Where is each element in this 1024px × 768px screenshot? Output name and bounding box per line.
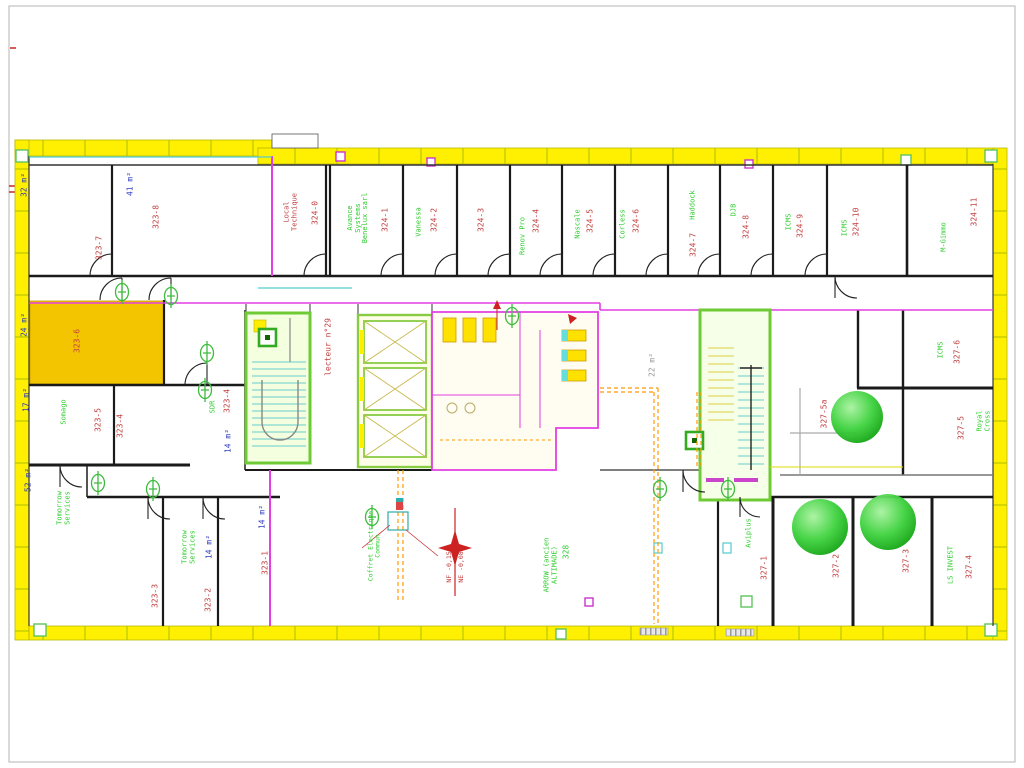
door-sensor-icon [201, 341, 214, 365]
door-sensor-icon [92, 471, 105, 495]
north-arrow-icon [438, 508, 472, 596]
stairwell-west [246, 313, 310, 463]
door-sensor-icon [654, 477, 667, 501]
floor-plan: 32 m² 323-7 41 m² 323-8 Local Technique … [0, 0, 1024, 768]
electrical-cabinet [362, 498, 438, 556]
floor-marker-icon [259, 329, 276, 346]
stairwell-east [700, 310, 770, 500]
door-sensor-icon [165, 284, 178, 308]
wall-notch [272, 134, 318, 148]
tree-icon [860, 494, 916, 550]
door-sensor-icon [199, 378, 212, 402]
door-sensor-icon [116, 280, 129, 304]
floor-plan-drawing [0, 0, 1024, 768]
tree-icon [792, 499, 848, 555]
highlighted-room-323-6 [30, 301, 164, 384]
sanitary-block [432, 300, 598, 470]
tree-icon [831, 391, 883, 443]
door-sensor-icon [366, 505, 379, 529]
elevator-shafts [358, 315, 432, 467]
